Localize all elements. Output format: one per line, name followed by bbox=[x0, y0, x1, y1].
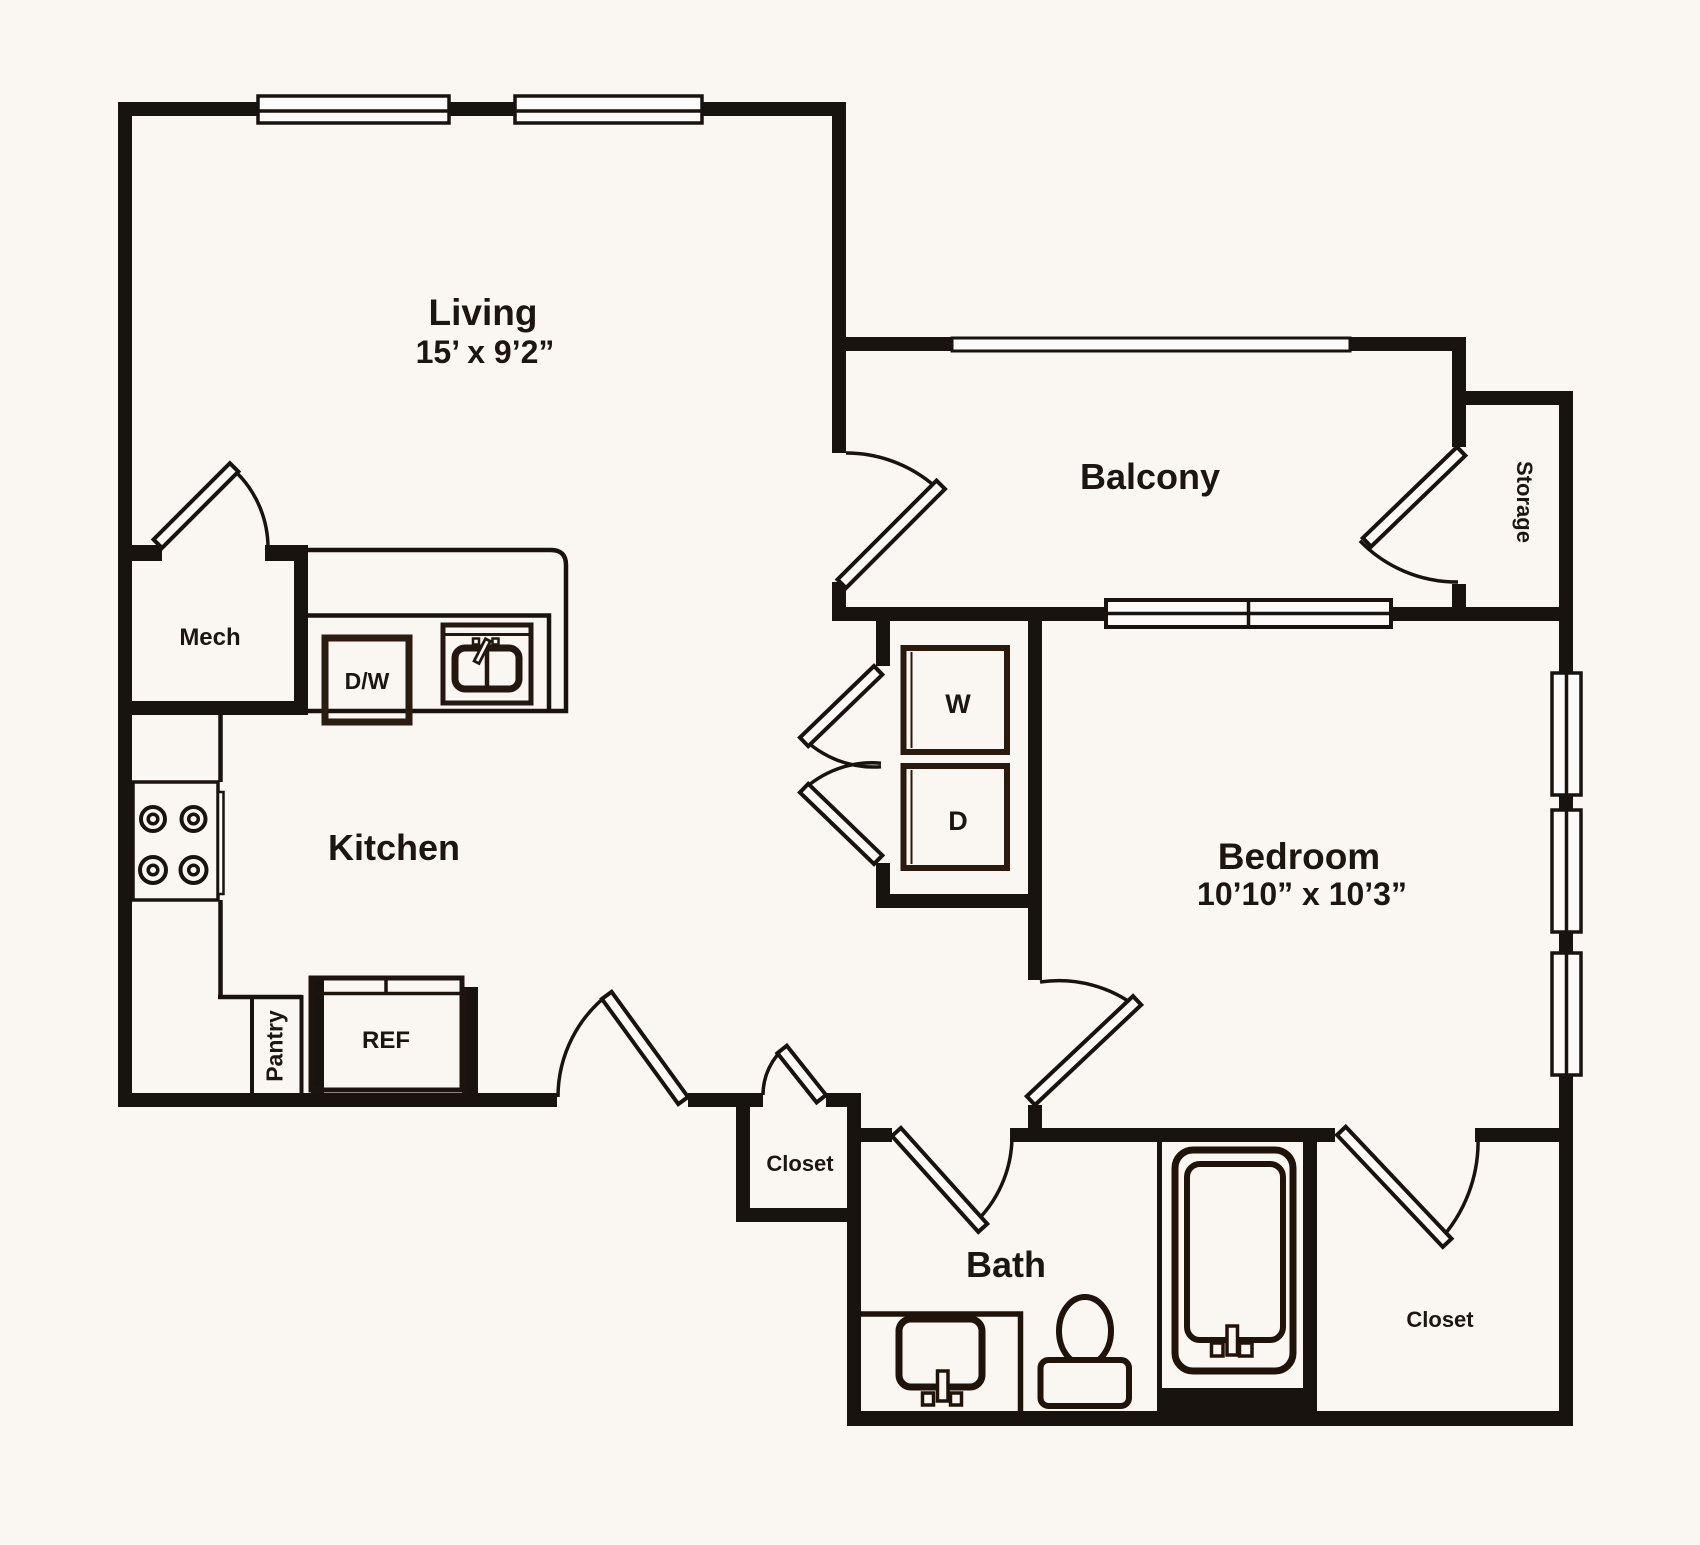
svg-text:15’ x 9’2”: 15’ x 9’2” bbox=[416, 334, 555, 370]
svg-text:W: W bbox=[945, 689, 971, 719]
svg-text:D/W: D/W bbox=[345, 668, 390, 694]
svg-text:Bedroom: Bedroom bbox=[1218, 836, 1380, 877]
svg-text:Balcony: Balcony bbox=[1080, 456, 1220, 497]
svg-text:Closet: Closet bbox=[1406, 1307, 1474, 1332]
svg-text:REF: REF bbox=[362, 1027, 410, 1054]
svg-text:D: D bbox=[948, 806, 968, 836]
svg-text:Living: Living bbox=[429, 292, 538, 333]
svg-text:Pantry: Pantry bbox=[262, 1010, 288, 1082]
svg-text:10’10” x 10’3”: 10’10” x 10’3” bbox=[1197, 876, 1407, 912]
svg-text:Bath: Bath bbox=[966, 1244, 1046, 1285]
svg-text:Kitchen: Kitchen bbox=[328, 827, 460, 868]
svg-text:Mech: Mech bbox=[179, 624, 240, 651]
svg-text:Closet: Closet bbox=[766, 1151, 834, 1176]
svg-text:Storage: Storage bbox=[1512, 461, 1537, 543]
